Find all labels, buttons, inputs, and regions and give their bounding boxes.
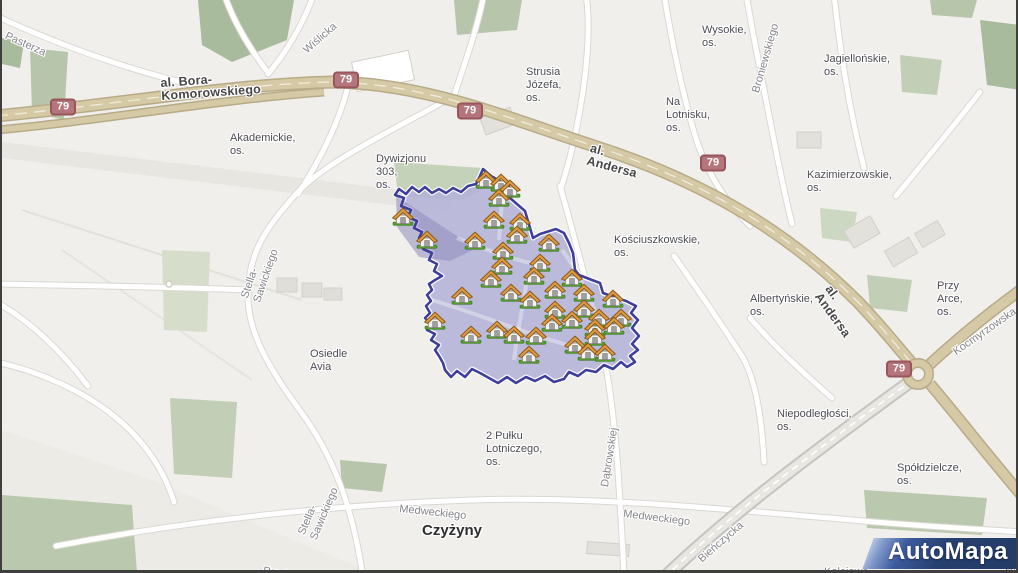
route-number-badge: 79 (333, 72, 359, 89)
house-icon (451, 287, 473, 306)
street-label: Czyżyny (422, 524, 482, 537)
house-icon (518, 346, 540, 365)
house-icon (483, 211, 505, 230)
house-marker[interactable] (603, 317, 625, 336)
district-label: 2 Pułku Lotniczego, os. (486, 430, 542, 469)
route-number-badge: 79 (700, 155, 726, 172)
map-canvas[interactable]: Wysokie, os.Jagiellońskie, os.Strusia Jó… (0, 0, 1018, 573)
house-marker[interactable] (518, 346, 540, 365)
house-icon (416, 231, 438, 250)
house-marker[interactable] (519, 291, 541, 310)
house-icon (460, 326, 482, 345)
district-label: Kazimierzowskie, os. (807, 169, 892, 195)
house-marker[interactable] (523, 267, 545, 286)
house-marker[interactable] (594, 344, 616, 363)
district-label: Spółdzielcze, os. (897, 462, 962, 488)
house-marker[interactable] (561, 311, 583, 330)
house-marker[interactable] (480, 270, 502, 289)
district-label: Akademickie, os. (230, 132, 295, 158)
district-label: Wysokie, os. (702, 24, 747, 50)
district-label: Kościuszkowskie, os. (614, 234, 700, 260)
house-marker[interactable] (392, 208, 414, 227)
district-label: Jagiellońskie, os. (824, 53, 890, 79)
house-marker[interactable] (451, 287, 473, 306)
house-marker[interactable] (464, 232, 486, 251)
district-label: Albertyńskie, os. (750, 293, 813, 319)
house-marker[interactable] (544, 281, 566, 300)
house-icon (464, 232, 486, 251)
house-marker[interactable] (416, 231, 438, 250)
house-marker[interactable] (483, 211, 505, 230)
house-icon (561, 311, 583, 330)
house-icon (538, 234, 560, 253)
house-icon (519, 291, 541, 310)
house-marker[interactable] (602, 290, 624, 309)
house-icon (603, 317, 625, 336)
district-label: Dywizjonu 303, os. (376, 153, 426, 192)
house-icon (594, 344, 616, 363)
district-label: Niepodległości, os. (777, 408, 852, 434)
house-icon (525, 327, 547, 346)
house-marker[interactable] (460, 326, 482, 345)
district-label: Osiedle Avia (310, 348, 347, 374)
district-label: Na Lotnisku, os. (666, 96, 710, 135)
district-label: Przy Arce, os. (937, 280, 963, 319)
house-marker[interactable] (525, 327, 547, 346)
house-icon (392, 208, 414, 227)
route-number-badge: 79 (457, 103, 483, 120)
house-icon (488, 189, 510, 208)
automapa-logo: AutoMapa (858, 538, 1016, 569)
house-marker[interactable] (503, 326, 525, 345)
house-marker[interactable] (538, 234, 560, 253)
house-icon (602, 290, 624, 309)
house-icon (544, 281, 566, 300)
route-number-badge: 79 (50, 99, 76, 116)
house-marker[interactable] (424, 312, 446, 331)
route-number-badge: 79 (886, 361, 912, 378)
house-icon (424, 312, 446, 331)
house-icon (523, 267, 545, 286)
house-marker[interactable] (488, 189, 510, 208)
automapa-logo-text: AutoMapa (888, 538, 1008, 566)
house-icon (503, 326, 525, 345)
house-icon (480, 270, 502, 289)
district-label: Strusia Józefa, os. (526, 66, 561, 105)
